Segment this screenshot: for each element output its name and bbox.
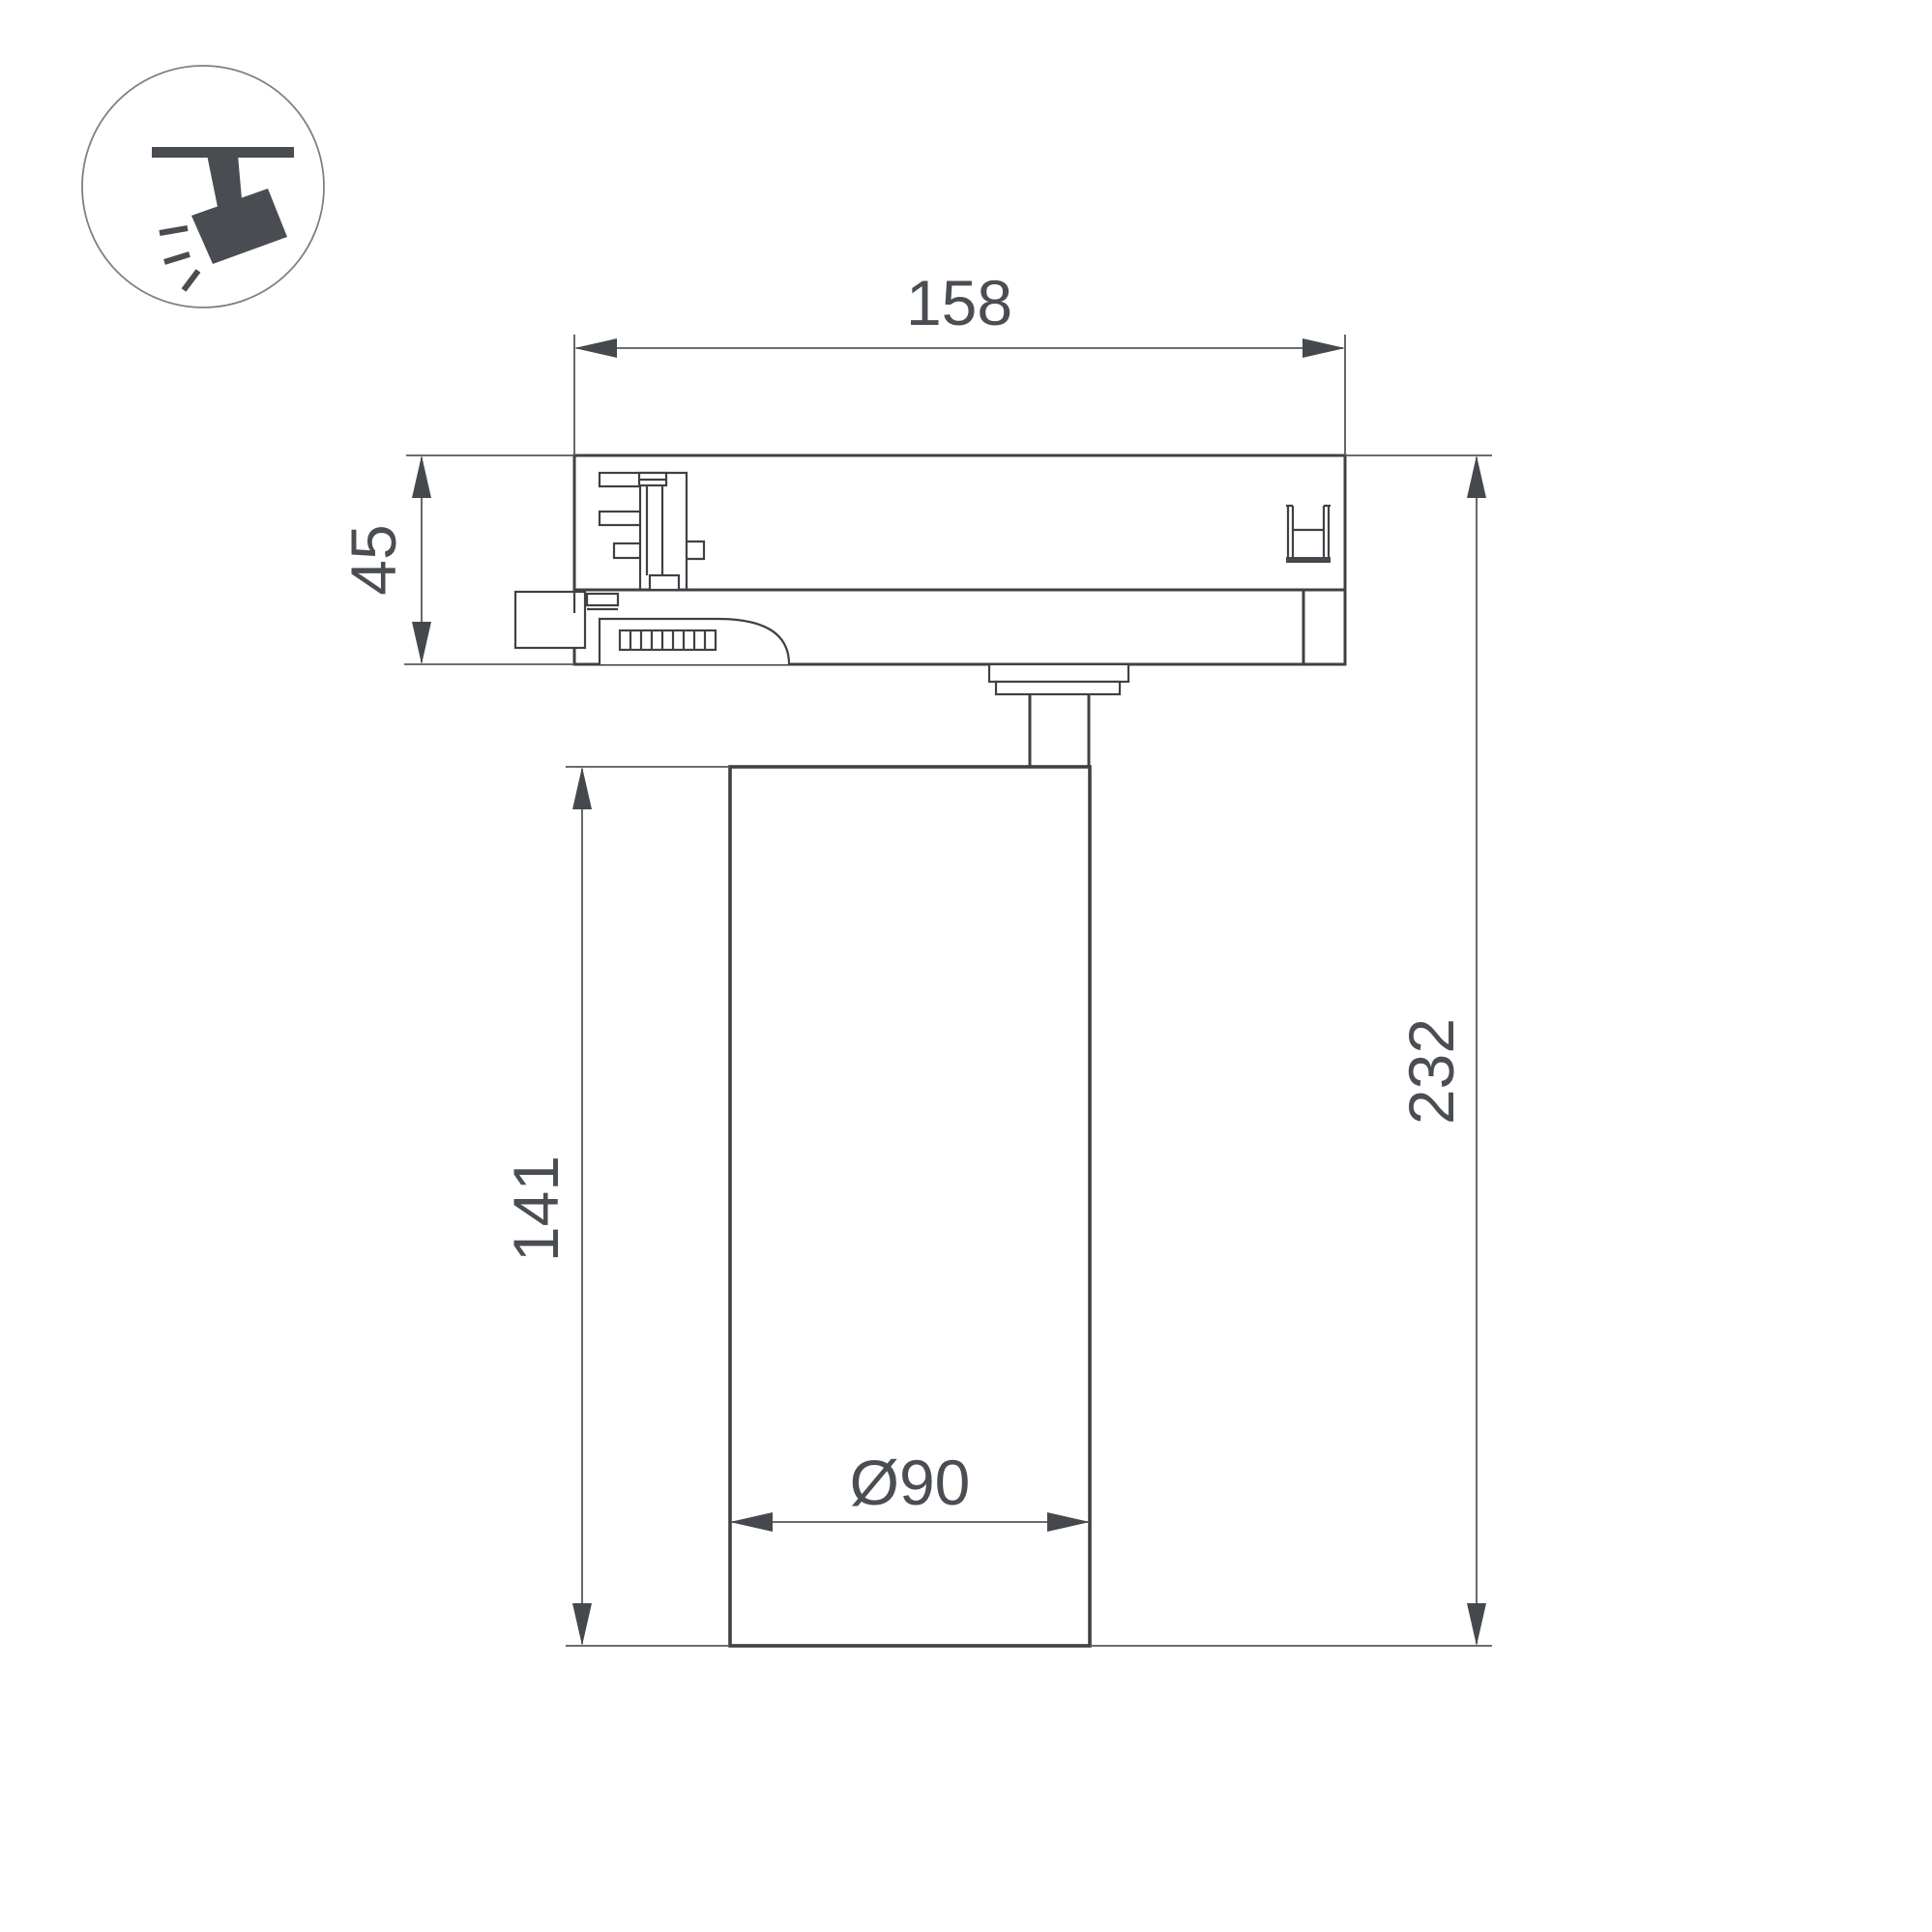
track-adapter	[515, 455, 1345, 664]
track-light-dimension-drawing: 158 45 141 232 Ø90	[0, 0, 1932, 1932]
dimension-width: 158	[574, 267, 1345, 455]
switch-boot	[600, 619, 789, 664]
dim-45-arrow-top	[412, 455, 431, 498]
dim-label-total-height: 232	[1395, 1018, 1467, 1125]
stem	[1030, 694, 1089, 767]
dim-label-diameter: Ø90	[850, 1447, 971, 1518]
right-clip-base	[1286, 557, 1331, 563]
dim-label-adapter-height: 45	[337, 524, 409, 595]
dim-158-arrow-left	[574, 338, 617, 358]
dimension-body-height: 141	[500, 767, 730, 1646]
contact-screw-foot	[650, 575, 679, 590]
dim-label-body-height: 141	[500, 1156, 571, 1262]
dim-232-arrow-bottom	[1467, 1603, 1486, 1646]
dim-label-width: 158	[906, 267, 1012, 338]
collar-step-upper	[989, 664, 1128, 682]
dim-141-arrow-top	[572, 767, 592, 809]
contact-prong-middle	[600, 512, 640, 525]
mounting-collar	[989, 664, 1128, 767]
dim-45-arrow-bottom	[412, 622, 431, 664]
dimension-drawing-page: 158 45 141 232 Ø90	[0, 0, 1932, 1932]
collar-step-lower	[996, 682, 1120, 694]
fixture-type-icon	[82, 66, 324, 307]
dim-141-extension-lines	[566, 767, 730, 1646]
dim-232-arrow-top	[1467, 455, 1486, 498]
dim-141-arrow-bottom	[572, 1603, 592, 1646]
contact-prong-bottom	[614, 543, 640, 558]
dim-158-arrow-right	[1303, 338, 1345, 358]
icon-circle	[82, 66, 324, 307]
dim-158-extension-lines	[574, 335, 1345, 455]
contact-prong-top	[600, 473, 640, 486]
latch-clip	[587, 594, 618, 605]
